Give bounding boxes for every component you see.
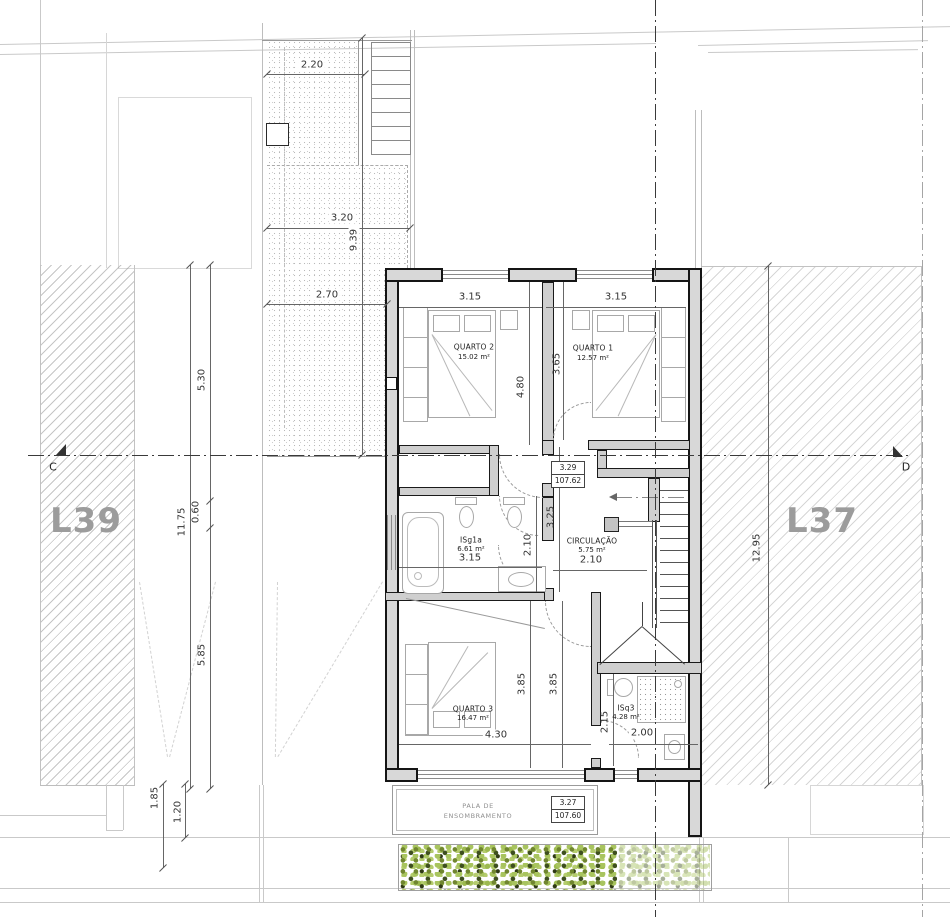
wall-partition (591, 758, 601, 768)
canopy-label: ENSOMBRAMENTO (444, 811, 512, 821)
wall-partition (542, 440, 554, 455)
room-area: 16.47 m² (457, 714, 489, 722)
room-name: CIRCULAÇÃO (567, 537, 618, 546)
dimension-line (399, 567, 542, 568)
window (443, 270, 508, 279)
toilet (455, 497, 477, 505)
dimension-label: 3.15 (457, 553, 483, 564)
dimension-line (563, 282, 564, 440)
sidewalk-line (106, 785, 107, 830)
window (418, 770, 584, 779)
dimension-line (609, 744, 698, 745)
dimension-label: 2.15 (600, 711, 611, 733)
sidewalk-line (788, 837, 789, 902)
lot-boundary-line (698, 40, 928, 46)
dimension-label: 5.30 (197, 369, 208, 391)
wall-exterior-bottom (385, 768, 418, 782)
dimension-line (553, 570, 647, 571)
door-arc (553, 402, 591, 440)
dimension-label: 3.85 (549, 673, 560, 695)
dimension-line (529, 282, 530, 445)
wall-exterior-top (508, 268, 577, 282)
boundary-axis-line (922, 0, 923, 917)
tree-canopy-line (275, 582, 278, 757)
dimension-label: 3.65 (552, 353, 563, 375)
sink-basin (508, 572, 534, 587)
wall-exterior-bottom (637, 768, 702, 782)
wall-partition (597, 662, 702, 674)
utility-box (266, 123, 289, 146)
bathtub-inner (407, 517, 439, 587)
shower-head (674, 680, 682, 688)
window (577, 270, 652, 279)
wall-vent-box (386, 377, 397, 390)
lot-l39-bottom-edge (40, 785, 135, 786)
tree-canopy-line (277, 581, 383, 757)
dimension-line (267, 228, 410, 229)
wardrobe (405, 644, 428, 736)
lot-boundary-line (106, 33, 107, 268)
sidewalk-line (106, 830, 123, 831)
exterior-stair-ladder (371, 42, 411, 155)
room-name: ISq3 (617, 704, 634, 713)
lot-boundary-line (40, 0, 41, 265)
wall-exterior-bottom (584, 768, 615, 782)
lot-l37-top-edge (702, 266, 922, 267)
setback-dashed-line (284, 48, 285, 428)
newel-column (604, 517, 619, 532)
dimension-label: 3.15 (457, 292, 483, 303)
stair-winder-line (642, 626, 685, 665)
dimension-line (530, 601, 531, 768)
courtyard-bottom-edge (267, 456, 385, 457)
stair-direction-arrow (609, 493, 617, 501)
section-letter-c: C (49, 461, 57, 474)
wall-partition (588, 440, 690, 450)
wall-partition (648, 478, 660, 522)
floor-plan-canvas: PALA DE ENSOMBRAMENTO (0, 0, 950, 917)
lot-boundary-line (695, 110, 696, 268)
courtyard-edge (358, 40, 359, 165)
pillow (433, 315, 460, 332)
section-flag-d (893, 446, 903, 457)
sink-basin (668, 740, 681, 754)
level-marker: 3.29 107.62 (551, 461, 585, 488)
dimension-label: 5.85 (197, 644, 208, 666)
dimension-line (399, 307, 542, 308)
wall-exterior-right (688, 268, 702, 837)
sidewalk-line (0, 815, 106, 816)
hedge (399, 845, 617, 890)
bathtub-drain (414, 572, 422, 580)
sidewalk-line (259, 785, 260, 902)
dimension-label: 3.85 (517, 673, 528, 695)
dimension-line (562, 601, 563, 768)
bidet-bowl (507, 506, 522, 528)
room-area: 6.61 m² (457, 545, 484, 553)
dimension-line (267, 304, 387, 305)
neighbor-building-outline (118, 97, 252, 269)
pillow (433, 711, 460, 728)
room-name: ISg1a (460, 536, 482, 545)
dimension-label: 2.10 (578, 555, 604, 566)
dimension-line (536, 496, 537, 592)
dimension-label: 12.95 (752, 534, 763, 563)
sidewalk-line (123, 785, 124, 830)
stair-winder-line (642, 602, 643, 626)
room-name: QUARTO 1 (573, 344, 613, 353)
lot-label-l37: L37 (786, 501, 858, 541)
stair-treads (660, 490, 688, 624)
tree-canopy-line (139, 582, 168, 757)
bedside-table (572, 310, 590, 330)
wall-partition (597, 468, 690, 478)
dimension-line (399, 744, 591, 745)
entry-path-outline (810, 785, 924, 835)
dimension-label: 4.30 (483, 730, 509, 741)
bidet (503, 497, 525, 505)
toilet-bowl (614, 678, 633, 697)
dimension-line (163, 784, 164, 868)
room-name: QUARTO 3 (453, 705, 493, 714)
stair-direction-line (616, 497, 686, 498)
courtyard-top-edge (262, 40, 412, 41)
window (615, 770, 637, 779)
level-value: 3.29 (552, 462, 584, 474)
closet-diagonal-line (406, 598, 545, 629)
room-area: 12.57 m² (577, 354, 609, 362)
dimension-label: 2.00 (629, 728, 655, 739)
dimension-line (362, 38, 363, 455)
bedside-table (500, 310, 518, 330)
wall-partition (591, 592, 601, 726)
wardrobe (403, 307, 428, 422)
level-elevation: 107.60 (552, 809, 584, 822)
dimension-label: 0.60 (191, 501, 202, 523)
dimension-label: 1.20 (173, 801, 184, 823)
dimension-label: 2.10 (523, 534, 534, 556)
lot-boundary-line (708, 49, 918, 53)
tree-canopy-line (169, 582, 216, 757)
sidewalk-line (263, 785, 264, 902)
dimension-label: 3.25 (546, 506, 557, 528)
hedge-sparse (617, 845, 710, 890)
section-flag-c (56, 444, 66, 455)
room-area: 15.02 m² (458, 353, 490, 361)
stair-rail (656, 520, 657, 628)
window (387, 515, 396, 570)
lot-label-l39: L39 (50, 501, 122, 541)
pillow (464, 315, 491, 332)
section-letter-d: D (902, 461, 910, 474)
pillow (628, 315, 655, 332)
dimension-label: 2.20 (299, 60, 325, 71)
room-area: 5.75 m² (578, 546, 605, 554)
toilet-bowl (459, 506, 474, 528)
dimension-label: 9.39 (349, 227, 360, 253)
level-marker: 3.27 107.60 (551, 796, 585, 823)
street-line (0, 837, 950, 838)
dimension-line (768, 266, 769, 785)
canopy-label: PALA DE (462, 801, 494, 811)
level-elevation: 107.62 (552, 474, 584, 487)
door-arc (499, 454, 543, 498)
wall-partition (399, 487, 499, 496)
lot-boundary-line (701, 110, 702, 268)
door-arc (545, 601, 591, 647)
lot-boundary-line (262, 23, 263, 785)
wall-partition (399, 445, 499, 454)
room-area: 4.28 m² (612, 713, 639, 721)
stair-rail (652, 520, 653, 628)
dimension-line (267, 74, 365, 75)
dimension-label: 3.15 (603, 292, 629, 303)
room-name: QUARTO 2 (454, 343, 494, 352)
dimension-label: 2.70 (314, 290, 340, 301)
dimension-label: 1.85 (150, 787, 161, 809)
dimension-line (546, 307, 686, 308)
center-axis-line (655, 0, 656, 917)
level-value: 3.27 (552, 797, 584, 809)
dimension-label: 4.80 (516, 376, 527, 398)
wall-exterior-top (385, 268, 443, 282)
wardrobe (661, 307, 686, 422)
pillow (597, 315, 624, 332)
wall-partition (489, 445, 499, 496)
stair-winder-line (599, 626, 642, 665)
section-line-cd (28, 455, 908, 456)
dimension-line (190, 265, 191, 789)
lot-boundary-line (414, 30, 415, 268)
dimension-label: 3.20 (329, 213, 355, 224)
dimension-label: 11.75 (177, 508, 188, 537)
street-line (0, 902, 950, 903)
